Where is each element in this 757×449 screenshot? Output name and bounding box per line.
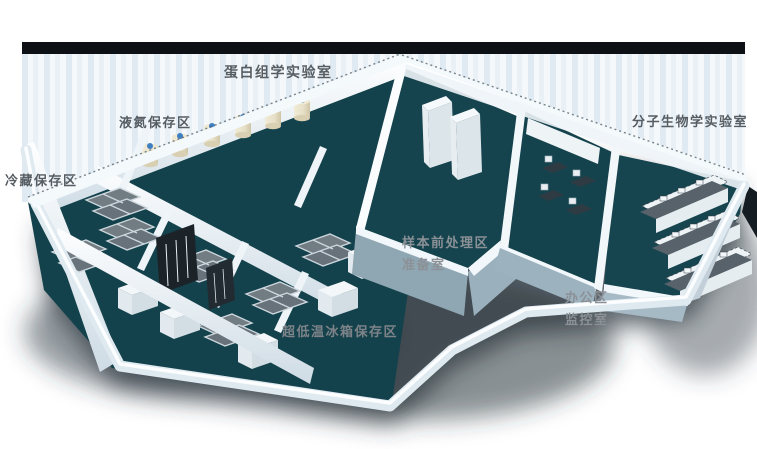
corner-room-cabinets [422, 96, 482, 180]
roof-edge-bar [22, 42, 745, 54]
label-prep-room: 准备室 [402, 254, 446, 273]
lab-floorplan-screenshot: 蛋白组学实验室 液氮保存区 冷藏保存区 分子生物学实验室 样本前处理区 准备室 … [0, 0, 757, 449]
lab-3d-render [0, 0, 757, 449]
label-proteomics-lab: 蛋白组学实验室 [224, 62, 333, 82]
label-office-area: 办公区 [565, 287, 609, 306]
label-monitor-room: 监控室 [565, 309, 609, 328]
label-liquid-nitrogen-area: 液氮保存区 [119, 112, 192, 131]
label-molecular-bio-lab: 分子生物学实验室 [632, 111, 748, 130]
label-cold-storage-area: 冷藏保存区 [5, 170, 78, 189]
label-sample-pretreat-area: 样本前处理区 [402, 232, 489, 251]
label-ulf-freezer-area: 超低温冰箱保存区 [282, 321, 398, 340]
